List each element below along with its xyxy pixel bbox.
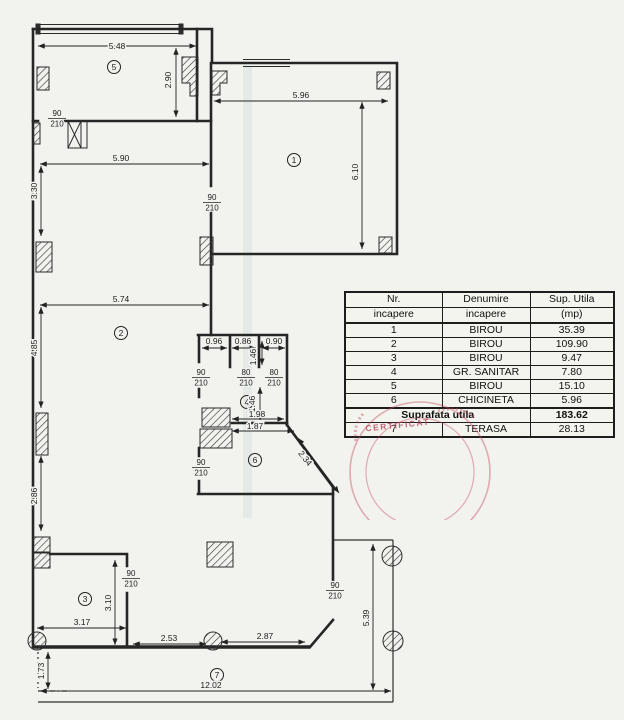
table-cell: BIROU	[442, 380, 530, 394]
door-size-label: 90210	[192, 368, 210, 388]
svg-text:80: 80	[270, 368, 279, 377]
svg-text:1: 1	[292, 155, 297, 165]
table-row: 6CHICINETA5.96	[345, 394, 614, 409]
table-cell: BIROU	[442, 338, 530, 352]
svg-text:210: 210	[267, 379, 281, 388]
table-cell: 6	[345, 394, 442, 409]
dim-label: 6.10	[350, 163, 360, 180]
dim-label: 5.90	[113, 153, 130, 163]
plan-labels: 51246375.482.905.903.305.966.105.744.852…	[29, 41, 371, 690]
total-label: Suprafata utila	[345, 408, 530, 423]
table-cell: TERASA	[442, 423, 530, 438]
table-row: 4GR. SANITAR7.80	[345, 366, 614, 380]
area-table: Nr. Denumire Sup. Utila incapere incaper…	[344, 291, 615, 438]
dim-label: 1.73	[36, 662, 46, 679]
svg-text:80: 80	[242, 368, 251, 377]
svg-text:90: 90	[197, 368, 206, 377]
dim-label: 2.53	[161, 633, 178, 643]
table-cell: 109.90	[530, 338, 614, 352]
table-row: 2BIROU109.90	[345, 338, 614, 352]
col-header-nr: Nr.	[345, 292, 442, 308]
door-size-label: 90210	[203, 193, 221, 213]
room-number: 6	[249, 454, 262, 467]
dim-label: 3.10	[103, 594, 113, 611]
dim-label: 1.87	[247, 421, 264, 431]
dim-label: 5.74	[113, 294, 130, 304]
dim-label: 5.39	[361, 609, 371, 626]
svg-text:210: 210	[194, 379, 208, 388]
table-cell: 35.39	[530, 323, 614, 338]
svg-text:90: 90	[331, 581, 340, 590]
room-number: 5	[108, 61, 121, 74]
room-number: 2	[115, 327, 128, 340]
total-row: Suprafata utila 183.62	[345, 408, 614, 423]
dim-label: 4.85	[29, 339, 39, 356]
dim-label: 3.30	[29, 182, 39, 199]
table-cell: 3	[345, 352, 442, 366]
table-cell: 15.10	[530, 380, 614, 394]
table-cell: 2	[345, 338, 442, 352]
door-size-label: 80210	[237, 368, 255, 388]
table-cell: 28.13	[530, 423, 614, 438]
table-cell: 5.96	[530, 394, 614, 409]
table-row: 1BIROU35.39	[345, 323, 614, 338]
col-subheader-incapere: incapere	[345, 308, 442, 324]
svg-text:5: 5	[112, 62, 117, 72]
svg-text:210: 210	[328, 592, 342, 601]
svg-text:6: 6	[253, 455, 258, 465]
svg-text:210: 210	[124, 580, 138, 589]
svg-text:90: 90	[197, 458, 206, 467]
dim-label: 5.96	[293, 90, 310, 100]
svg-text:210: 210	[50, 120, 64, 129]
svg-text:90: 90	[127, 569, 136, 578]
window-lines	[36, 24, 290, 67]
table-cell: BIROU	[442, 352, 530, 366]
dim-label: 1.46	[248, 348, 258, 365]
table-cell: 7.80	[530, 366, 614, 380]
table-cell: BIROU	[442, 323, 530, 338]
svg-text:210: 210	[205, 204, 219, 213]
dim-label: 2.86	[29, 487, 39, 504]
table-cell: 7	[345, 423, 442, 438]
dim-label: 1.98	[249, 409, 266, 419]
table-cell: 5	[345, 380, 442, 394]
table-cell: 4	[345, 366, 442, 380]
area-table-body: 1BIROU35.392BIROU109.903BIROU9.474GR. SA…	[345, 323, 614, 408]
area-table-header: Nr. Denumire Sup. Utila incapere incaper…	[345, 292, 614, 323]
svg-text:3: 3	[83, 594, 88, 604]
col-header-denumire: Denumire	[442, 292, 530, 308]
svg-text:90: 90	[53, 109, 62, 118]
dim-label: 0.86	[235, 336, 252, 346]
dim-label: 0.96	[206, 336, 223, 346]
col-header-sup: Sup. Utila	[530, 292, 614, 308]
door-size-label: 90210	[192, 458, 210, 478]
door-size-label: 90210	[48, 109, 66, 129]
dim-label: 2.87	[257, 631, 274, 641]
svg-text:90: 90	[208, 193, 217, 202]
table-cell: 9.47	[530, 352, 614, 366]
door-size-label: 80210	[265, 368, 283, 388]
table-cell: 1	[345, 323, 442, 338]
floor-plan-page: 51246375.482.905.903.305.966.105.744.852…	[0, 0, 624, 720]
table-row: 3BIROU9.47	[345, 352, 614, 366]
svg-text:7: 7	[215, 670, 220, 680]
dim-label: 0.90	[266, 336, 283, 346]
dim-label: 5.48	[109, 41, 126, 51]
room-number: 1	[288, 154, 301, 167]
table-row: 5BIROU15.10	[345, 380, 614, 394]
col-subheader-incapere2: incapere	[442, 308, 530, 324]
dim-label: 12.02	[200, 680, 222, 690]
door-size-label: 90210	[122, 569, 140, 589]
total-value: 183.62	[530, 408, 614, 423]
svg-text:2: 2	[119, 328, 124, 338]
col-subheader-mp: (mp)	[530, 308, 614, 324]
shaft-symbol	[68, 121, 87, 148]
dim-label: 2.90	[163, 71, 173, 88]
door-size-label: 90210	[326, 581, 344, 601]
terasa-row: 7 TERASA 28.13	[345, 423, 614, 438]
svg-text:210: 210	[239, 379, 253, 388]
room-number: 3	[79, 593, 92, 606]
dim-label: 3.17	[74, 617, 91, 627]
table-cell: GR. SANITAR	[442, 366, 530, 380]
table-cell: CHICINETA	[442, 394, 530, 409]
dim-label: 2.34	[296, 449, 314, 468]
svg-text:210: 210	[194, 469, 208, 478]
